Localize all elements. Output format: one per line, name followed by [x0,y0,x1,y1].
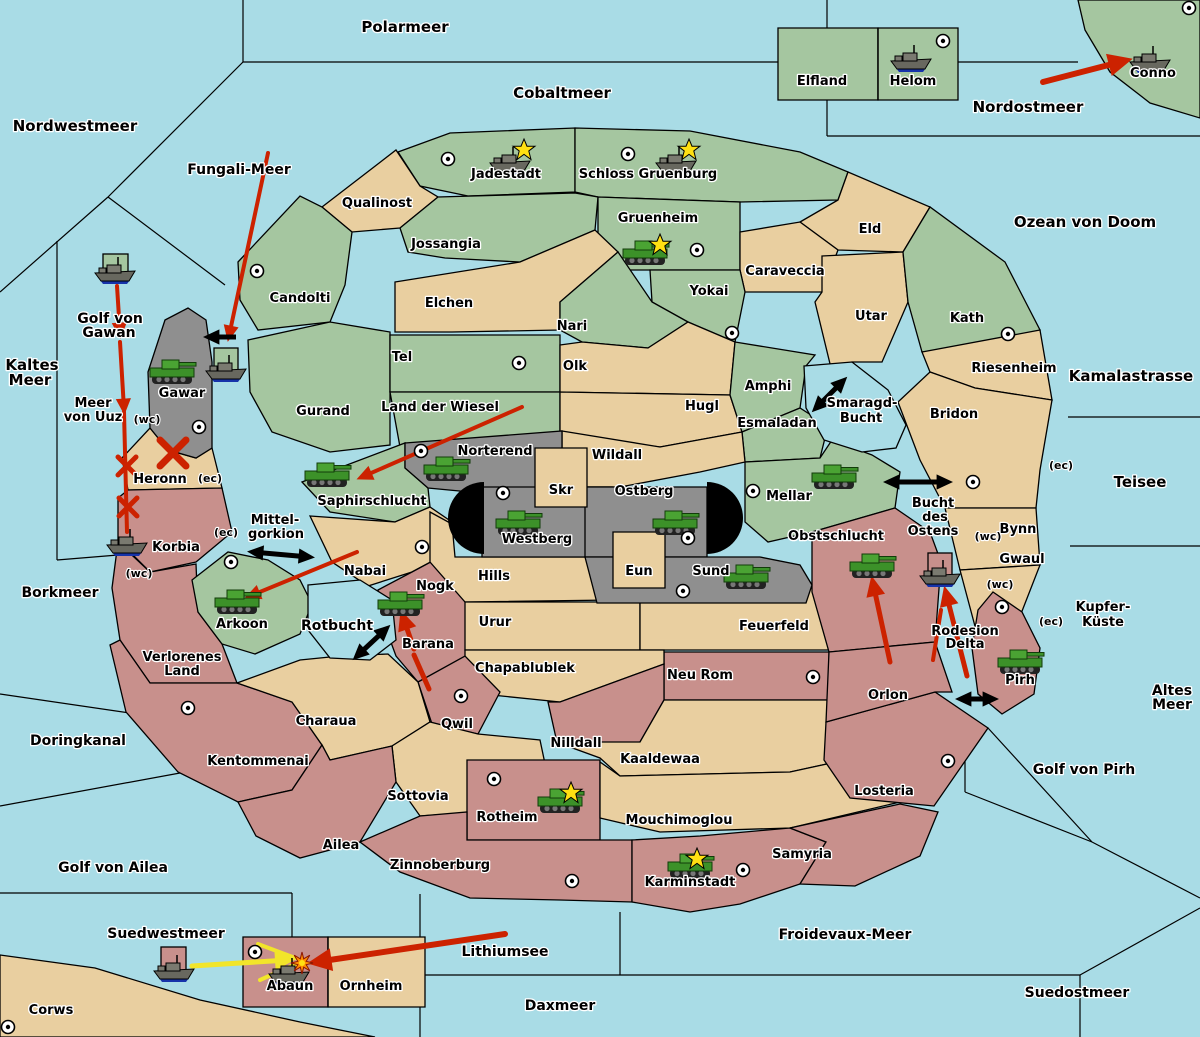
region-label-hugl: Hugl [685,399,719,414]
center-dot-rotheim-center [492,777,496,781]
sea-label-30: Smaragd- [827,396,898,411]
sea-label-6: Teisee [1114,473,1167,491]
region-label-bridon: Bridon [930,407,978,422]
region-label-urur: Urur [479,615,512,630]
sea-label-27: Meer [1152,697,1192,713]
sea-label-1: Polarmeer [361,18,449,36]
region-label-abaun: Abaun [267,979,314,994]
sea-label-31: Bucht [840,411,882,426]
region-label-zinnoberburg: Zinnoberburg [390,858,490,873]
sea-label-16: Borkmeer [22,585,99,601]
region-elfland[interactable] [778,28,878,100]
region-label-qualinost: Qualinost [342,196,412,211]
center-dot-arkoon-center [229,560,233,564]
sea-label-21: Lithiumsee [461,944,548,960]
sea-label-24: Suedostmeer [1025,985,1130,1001]
coast-badge-7: (ec) [1039,615,1063,628]
center-dot-yokai-center [730,331,734,335]
region-label-samyria: Samyria [772,847,832,862]
coast-badge-1: (ec) [198,472,222,485]
sea-label-19: Golf von Ailea [58,860,168,876]
center-dot-gawar-center [197,425,201,429]
center-dot-corws-center [6,1025,10,1029]
center-dot-abaun-center [253,950,257,954]
region-skr[interactable] [535,448,587,507]
sea-label-8: Meer [9,371,52,389]
sea-label-3: Nordostmeer [973,98,1084,116]
center-dot-neu-rom-center [811,675,815,679]
sea-label-22: Daxmeer [525,998,596,1014]
region-label-gruenheim: Gruenheim [618,211,698,226]
coast-badge-5: (wc) [975,530,1002,543]
region-label-wildall: Wildall [592,448,642,463]
region-label-qwil: Qwil [441,717,473,732]
sea-label-5: Kamalastrasse [1069,367,1193,385]
center-dot-helom-center [941,39,945,43]
region-label-esmaladan: Esmaladan [737,416,817,431]
region-tel[interactable] [390,335,560,392]
region-label-gwaul: Gwaul [999,552,1044,567]
region-label-ostberg: Ostberg [615,484,674,499]
sea-label-29: Küste [1082,615,1124,630]
region-label-schloss-gruenburg: Schloss Gruenburg [579,167,717,182]
region-label-verlorenes-land: Land [164,664,200,679]
sea-label-34: Ostens [908,524,959,539]
region-label-orlon: Orlon [868,688,908,703]
region-label-sund: Sund [692,564,729,579]
center-dot-ostberg-center [686,536,690,540]
region-label-karminstadt: Karminstadt [645,875,736,890]
sea-label-33: des [922,510,948,525]
region-label-bynn: Bynn [1000,522,1037,537]
region-label-korbia: Korbia [152,540,200,555]
center-dot-conno-center [1187,6,1191,10]
sea-label-14: Mittel- [251,513,300,528]
center-dot-karminstadt-center [741,868,745,872]
center-dot-tel-center [517,361,521,365]
sea-label-13: von Uuz [64,410,123,425]
sea-label-2: Cobaltmeer [513,84,611,102]
sea-label-9: Fungali-Meer [187,162,291,178]
region-label-jadestadt: Jadestadt [470,167,541,182]
region-label-rotheim: Rotheim [476,810,537,825]
center-dot-nabai-center [420,545,424,549]
sea-label-17: Rotbucht [301,618,373,634]
region-label-kentommenai: Kentommenai [207,754,308,769]
map-canvas: JadestadtSchloss GruenburgQualinostJossa… [0,0,1200,1037]
region-label-utar: Utar [855,309,888,324]
coast-badge-2: (ec) [214,526,238,539]
region-label-candolti: Candolti [270,291,331,306]
region-label-tel: Tel [392,350,412,365]
region-label-charaua: Charaua [296,714,357,729]
explosion-icon [291,952,313,974]
region-label-ailea: Ailea [323,838,360,853]
coast-badge-3: (wc) [126,567,153,580]
region-label-heronn: Heronn [133,472,187,487]
center-dot-westberg-center [501,491,505,495]
center-dot-mellar-center [751,489,755,493]
region-label-nilldall: Nilldall [550,736,601,751]
region-label-skr: Skr [549,483,574,498]
region-label-corws: Corws [29,1003,74,1018]
region-label-losteria: Losteria [854,784,914,799]
sea-label-25: Golf von Pirh [1033,762,1135,778]
region-label-conno: Conno [1130,66,1176,81]
region-label-land-der-wiesel: Land der Wiesel [381,400,499,415]
center-dot-bridon-center [971,480,975,484]
region-label-verlorenes-land: Verlorenes [142,650,221,665]
region-label-helom: Helom [890,74,937,89]
sea-label-23: Froidevaux-Meer [779,927,912,943]
region-label-gurand: Gurand [296,404,350,419]
region-label-elchen: Elchen [425,296,473,311]
region-label-arkoon: Arkoon [216,617,268,632]
sea-label-36: Delta [945,637,984,652]
region-eun[interactable] [613,532,665,588]
region-label-mellar: Mellar [766,489,812,504]
center-dot-verlorenes-land-center [186,706,190,710]
region-label-norterend: Norterend [457,444,532,459]
region-label-saphirschlucht: Saphirschlucht [317,494,426,509]
coast-badge-4: (ec) [1049,459,1073,472]
sea-label-20: Suedwestmeer [107,926,225,942]
region-label-neu-rom: Neu Rom [667,668,733,683]
region-label-mouchimoglou: Mouchimoglou [626,813,733,828]
sea-label-28: Kupfer- [1076,600,1131,615]
region-label-hills: Hills [478,569,510,584]
region-label-gawar: Gawar [159,386,206,401]
center-dot-losteria-center [946,759,950,763]
sea-label-0: Nordwestmeer [13,117,138,135]
region-label-nari: Nari [557,319,588,334]
region-label-nogk-barana: Nogk [416,579,454,594]
region-label-olk: Olk [563,359,588,374]
region-label-westberg: Westberg [502,532,572,547]
region-label-pirh: Pirh [1005,673,1035,688]
center-dot-pirh-center [1000,605,1004,609]
region-label-ornheim: Ornheim [340,979,403,994]
region-label-nogk-barana: Barana [402,637,454,652]
center-dot-candolti-center [255,269,259,273]
center-dot-norterend-center [419,449,423,453]
sea-label-12: Meer [75,396,113,411]
region-label-chapablublek: Chapablublek [475,661,575,676]
region-label-kaaldewaa: Kaaldewaa [620,752,700,767]
sea-label-18: Doringkanal [30,733,126,749]
region-label-yokai: Yokai [688,284,728,299]
region-label-jossangia: Jossangia [410,237,481,252]
coast-badge-0: (wc) [134,413,161,426]
center-dot-sund-center [681,589,685,593]
region-label-eld: Eld [859,222,882,237]
region-label-obstschlucht: Obstschlucht [788,529,884,544]
center-dot-kath-center [1006,332,1010,336]
region-label-elfland: Elfland [797,74,847,89]
region-label-nabai: Nabai [344,564,386,579]
sea-label-11: Gawan [82,325,135,341]
region-label-riesenheim: Riesenheim [971,361,1056,376]
sea-label-4: Ozean von Doom [1014,213,1156,231]
center-dot-schloss-gruenburg-center [626,152,630,156]
region-label-caraveccia: Caraveccia [745,264,824,279]
sea-label-15: gorkion [248,527,304,542]
region-label-feuerfeld: Feuerfeld [739,619,809,634]
region-label-sottovia: Sottovia [387,789,448,804]
center-dot-gruenheim-center [695,248,699,252]
center-dot-qwil-center [459,694,463,698]
region-label-amphi: Amphi [745,379,792,394]
sea-label-32: Bucht [912,496,954,511]
game-map: JadestadtSchloss GruenburgQualinostJossa… [0,0,1200,1037]
coast-badge-6: (wc) [987,578,1014,591]
region-label-kath: Kath [950,311,984,326]
center-dot-zinnoberburg-center [570,879,574,883]
region-label-eun: Eun [625,564,652,579]
center-dot-jadestadt-center [446,157,450,161]
